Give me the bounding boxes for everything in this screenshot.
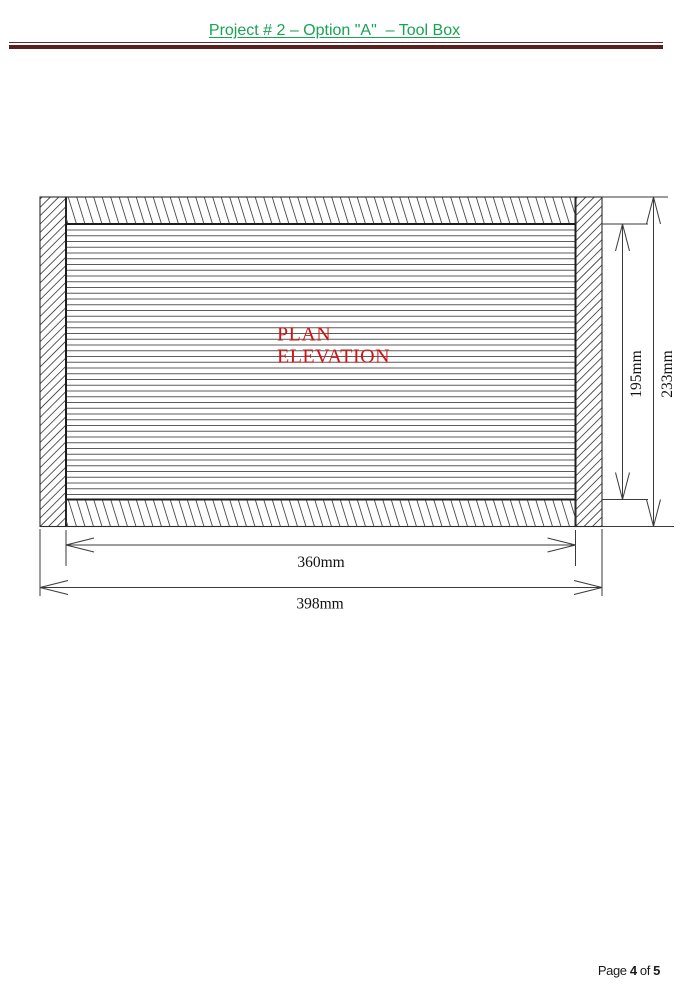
svg-text:ELEVATION: ELEVATION <box>277 346 390 368</box>
svg-text:233mm: 233mm <box>659 350 676 397</box>
svg-text:PLAN: PLAN <box>277 324 331 346</box>
svg-text:360mm: 360mm <box>297 554 344 571</box>
svg-text:195mm: 195mm <box>628 350 645 397</box>
svg-text:398mm: 398mm <box>296 596 343 613</box>
